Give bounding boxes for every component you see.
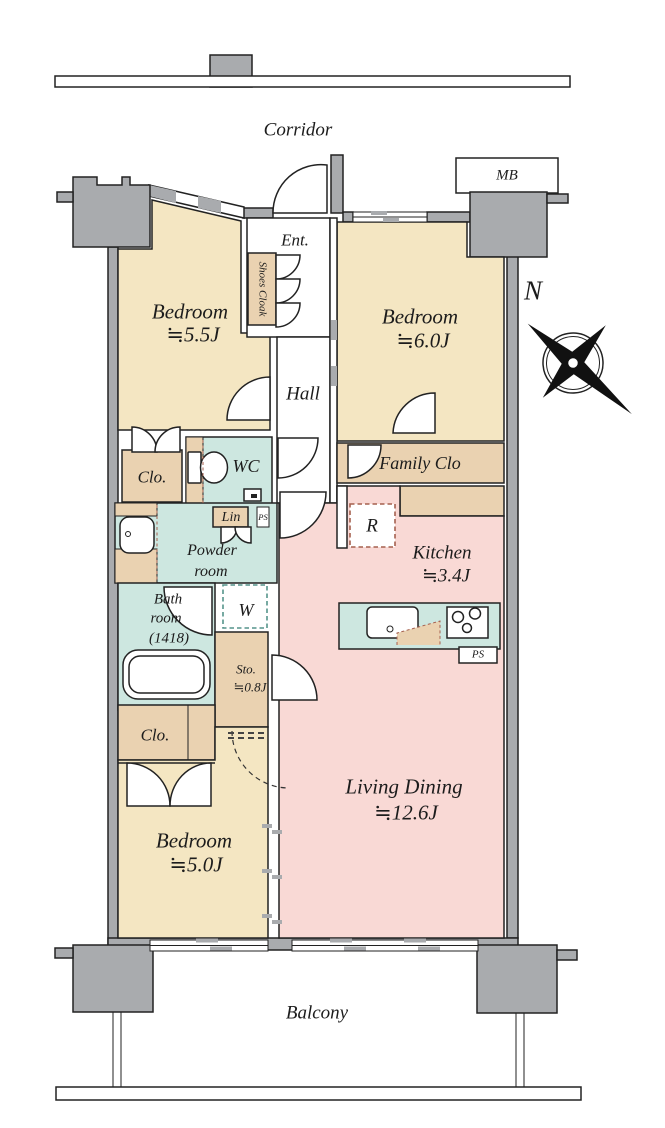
corridor-structure	[55, 55, 570, 87]
entrance-door	[273, 165, 327, 213]
label-hall: Hall	[286, 385, 320, 404]
label-bedroom-c-name: Bedroom	[156, 831, 232, 852]
label-entrance: Ent.	[281, 232, 309, 249]
balcony-structure	[56, 1012, 581, 1100]
label-powder-1: Powder	[187, 543, 237, 559]
label-living-size: ≒12.6J	[374, 803, 438, 824]
label-bedroom-c-size: ≒5.0J	[169, 855, 222, 876]
label-closet-lower: Clo.	[141, 727, 170, 744]
label-closet-upper: Clo.	[138, 469, 167, 486]
label-kitchen-name: Kitchen	[412, 544, 471, 563]
label-washer: W	[239, 601, 254, 619]
label-balcony: Balcony	[286, 1004, 348, 1023]
stove-icon	[447, 607, 488, 638]
label-living-name: Living Dining	[345, 777, 462, 798]
label-powder-2: room	[194, 564, 227, 580]
label-family-closet: Family Clo	[379, 454, 461, 472]
washbasin-icon	[120, 517, 154, 553]
floor-plan: Corridor MB Ent. Shoes Cloak Bedroom ≒5.…	[0, 0, 665, 1128]
family-closet-inner	[400, 486, 504, 516]
label-wc: WC	[233, 457, 260, 475]
label-bath-1: Bath	[154, 593, 182, 608]
label-linen: Lin	[222, 511, 241, 525]
compass-icon	[498, 286, 665, 449]
label-bath-3: (1418)	[149, 632, 189, 647]
floor-plan-graphics	[0, 0, 665, 1128]
label-storage-name: Sto.	[236, 663, 256, 676]
label-kitchen-size: ≒3.4J	[422, 567, 470, 586]
label-bath-2: room	[150, 612, 181, 627]
label-refrigerator: R	[366, 517, 378, 536]
label-storage-size: ≒0.8J	[234, 681, 267, 694]
label-mb: MB	[496, 169, 518, 184]
label-bedroom-a-size: ≒5.5J	[166, 325, 219, 346]
label-corridor: Corridor	[264, 121, 333, 140]
label-ps-kitchen: PS	[472, 650, 484, 661]
label-bedroom-b-size: ≒6.0J	[396, 331, 449, 352]
label-compass-north: N	[524, 278, 542, 305]
wall-hall-bedroom	[330, 218, 337, 503]
label-bedroom-b-name: Bedroom	[382, 307, 458, 328]
label-bedroom-a-name: Bedroom	[152, 302, 228, 323]
label-ps-upper: PS	[258, 513, 267, 522]
bathtub-icon	[123, 650, 210, 699]
label-shoes-cloak: Shoes Cloak	[257, 262, 268, 317]
wall-kitchen	[337, 486, 347, 548]
